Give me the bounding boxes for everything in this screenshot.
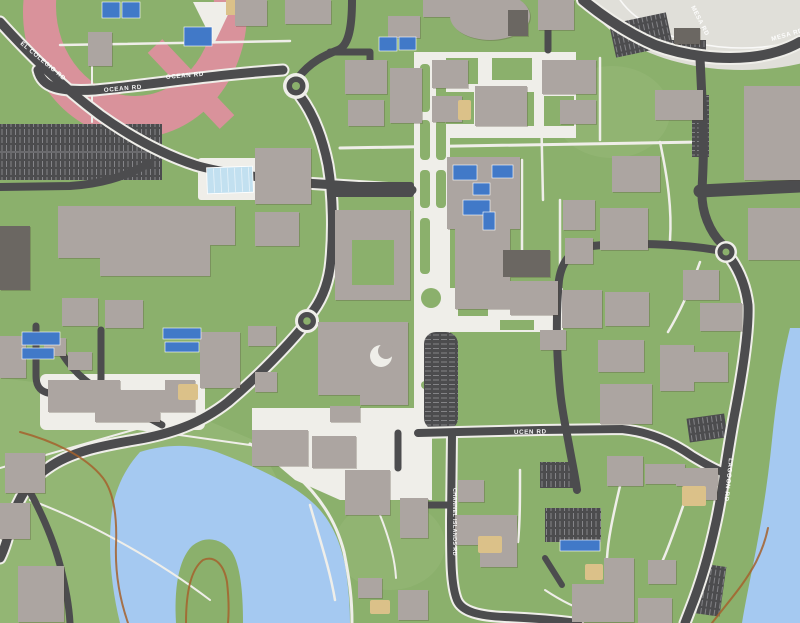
swimming-pool bbox=[207, 166, 254, 194]
roundabout bbox=[715, 241, 737, 263]
campus-map-window: EL COLEGIO RD OCEAN RD OCEAN RD MESA RD … bbox=[0, 0, 800, 623]
road-spur bbox=[330, 182, 414, 197]
solar-parking-canopy bbox=[560, 540, 600, 551]
roundabout bbox=[283, 73, 309, 99]
road-east-exit bbox=[700, 186, 800, 191]
road-label-ucen: UCEN RD bbox=[514, 428, 547, 436]
parking-structure bbox=[424, 332, 458, 430]
parking-lot bbox=[545, 508, 601, 542]
road-label-channel-islands: CHANNEL ISLANDS RD bbox=[451, 488, 457, 556]
campus-map-canvas[interactable]: EL COLEGIO RD OCEAN RD OCEAN RD MESA RD … bbox=[0, 0, 800, 623]
crescent-courtyard-building bbox=[318, 322, 408, 405]
roundabout bbox=[295, 309, 319, 333]
